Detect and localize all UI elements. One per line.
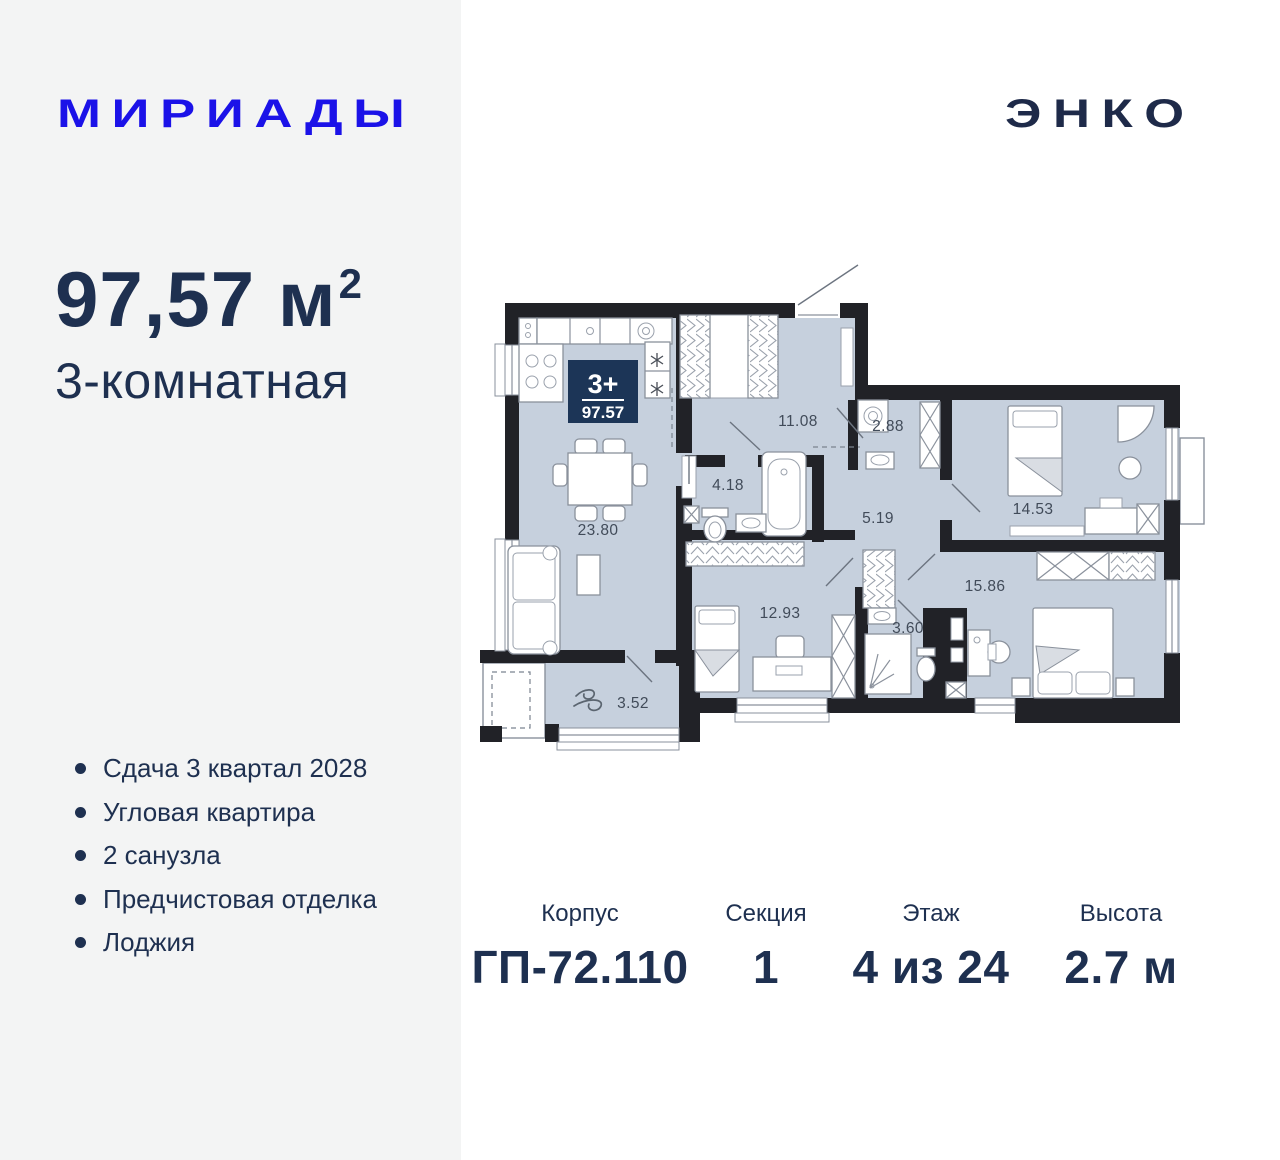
developer-logo: ЭНКО (1005, 92, 1196, 137)
info-value: ГП-72.110 (471, 940, 688, 994)
info-label: Этаж (853, 900, 1010, 928)
room-area-label: 23.80 (578, 522, 619, 539)
list-item: Лоджия (75, 921, 377, 965)
badge-rooms-label: 3+ (588, 369, 619, 399)
fridge (645, 342, 670, 398)
apartment-area-title: 97,57 м2 (55, 254, 363, 345)
sofa (508, 546, 560, 655)
info-value: 1 (725, 940, 806, 994)
bullet-icon (75, 937, 86, 948)
bullet-icon (75, 850, 86, 861)
room-area-label: 15.86 (965, 578, 1006, 595)
stove (519, 344, 563, 402)
rooms-badge: 3+ 97.57 (568, 360, 638, 423)
corridor-closet (863, 550, 895, 608)
room-area-label: 2.88 (872, 418, 904, 435)
summary-panel (0, 0, 461, 1160)
feature-label: Сдача 3 квартал 2028 (103, 753, 367, 784)
feature-label: 2 санузла (103, 840, 221, 871)
floor-plan: 23.80 11.08 2.88 4.18 5.19 14.53 15.86 1… (480, 258, 1220, 758)
info-section: Секция 1 (725, 900, 806, 994)
room-area-label: 3.52 (617, 695, 649, 712)
info-label: Секция (725, 900, 806, 928)
room-area-label: 14.53 (1013, 501, 1054, 518)
list-item: Сдача 3 квартал 2028 (75, 747, 377, 791)
bullet-icon (75, 763, 86, 774)
room-area-label: 11.08 (778, 413, 818, 430)
apartment-card: МИРИАДЫ ЭНКО 97,57 м2 3-комнатная Сдача … (0, 0, 1280, 1160)
room-area-label: 12.93 (760, 605, 801, 622)
feature-list: Сдача 3 квартал 2028 Угловая квартира 2 … (75, 747, 377, 965)
area-superscript: 2 (339, 260, 363, 307)
room-area-label: 4.18 (712, 477, 744, 494)
info-value: 2.7 м (1064, 940, 1177, 994)
list-item: 2 санузла (75, 834, 377, 878)
room-area-label: 3.60 (892, 620, 924, 637)
badge-area-label: 97.57 (582, 403, 625, 422)
exterior-balcony-right (1180, 438, 1204, 524)
room-type-title: 3-комнатная (55, 352, 349, 410)
area-value: 97,57 м (55, 255, 337, 343)
list-item: Предчистовая отделка (75, 878, 377, 922)
list-item: Угловая квартира (75, 791, 377, 835)
feature-label: Предчистовая отделка (103, 884, 377, 915)
kitchen-counter (519, 318, 672, 344)
corridor-wardrobe (686, 542, 804, 566)
bullet-icon (75, 807, 86, 818)
bullet-icon (75, 894, 86, 905)
info-value: 4 из 24 (853, 940, 1010, 994)
room-area-label: 5.19 (862, 510, 894, 527)
project-logo: МИРИАДЫ (57, 92, 415, 137)
info-building: Корпус ГП-72.110 (471, 900, 688, 994)
info-height: Высота 2.7 м (1064, 900, 1177, 994)
info-label: Высота (1064, 900, 1177, 928)
info-label: Корпус (471, 900, 688, 928)
info-floor: Этаж 4 из 24 (853, 900, 1010, 994)
tv-stand (577, 555, 600, 595)
feature-label: Лоджия (103, 927, 195, 958)
feature-label: Угловая квартира (103, 797, 315, 828)
